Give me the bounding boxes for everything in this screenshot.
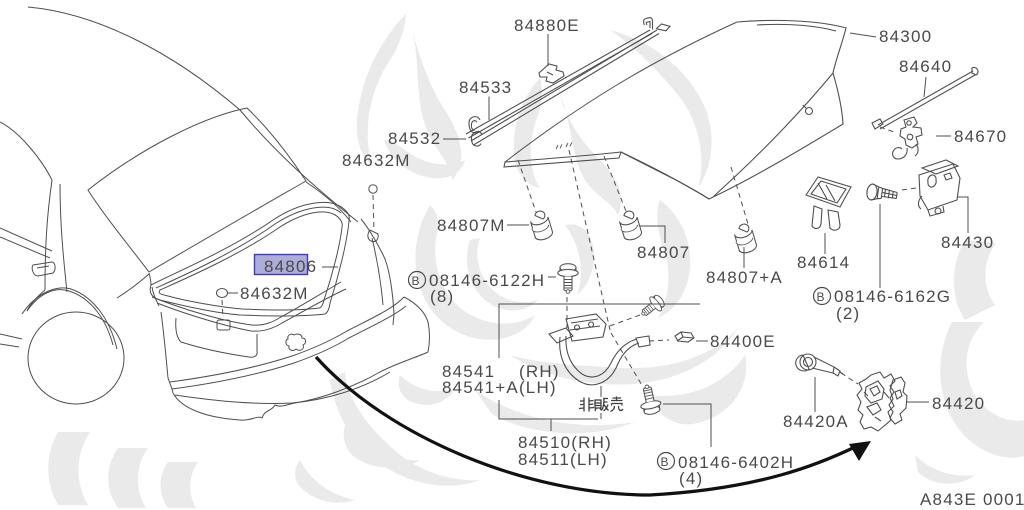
svg-text:84430: 84430 [941,233,994,252]
svg-text:84632M: 84632M [240,284,309,303]
svg-text:84640: 84640 [899,57,952,76]
svg-text:84670: 84670 [954,127,1007,146]
svg-text:84807M: 84807M [437,216,506,235]
svg-text:(4): (4) [679,469,703,488]
svg-text:84807+A: 84807+A [706,268,783,287]
svg-text:84511(LH): 84511(LH) [518,450,608,469]
svg-text:(2): (2) [836,304,860,323]
svg-text:84532: 84532 [388,129,441,148]
svg-text:84632M: 84632M [342,151,411,170]
svg-text:84541+A(LH): 84541+A(LH) [442,378,557,397]
svg-text:84420A: 84420A [783,412,849,431]
svg-text:84880E: 84880E [514,16,580,35]
svg-text:84807: 84807 [637,243,690,262]
svg-text:(8): (8) [430,287,454,306]
svg-text:84420: 84420 [932,394,985,413]
svg-text:84533: 84533 [459,78,512,97]
svg-text:84806: 84806 [264,257,317,276]
svg-text:84614: 84614 [797,253,850,272]
svg-text:B: B [817,290,825,304]
svg-text:84400E: 84400E [710,332,776,351]
svg-text:B: B [412,274,420,288]
svg-text:B: B [661,455,669,469]
svg-text:84300: 84300 [879,27,932,46]
svg-text:A843E 0001: A843E 0001 [920,490,1024,509]
